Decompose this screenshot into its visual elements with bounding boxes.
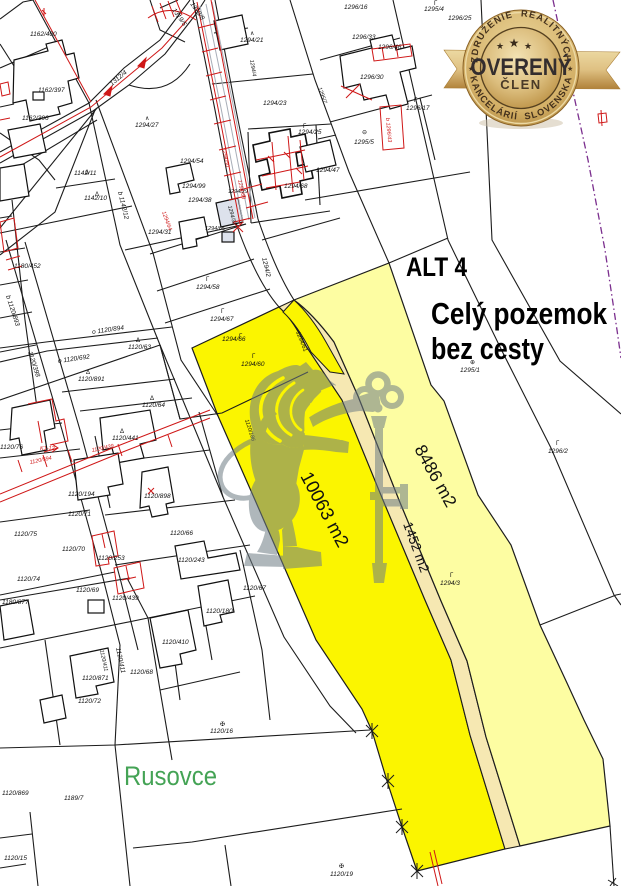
svg-text:1120/71: 1120/71: [68, 511, 91, 518]
svg-text:1294/99: 1294/99: [182, 183, 206, 190]
svg-text:1120/15: 1120/15: [4, 855, 27, 862]
svg-text:1120/871: 1120/871: [82, 675, 109, 682]
svg-text:1294/21: 1294/21: [240, 37, 264, 44]
svg-text:1294/23: 1294/23: [263, 100, 287, 107]
svg-text:K1-12: K1-12: [40, 446, 55, 452]
svg-text:1120/74: 1120/74: [17, 576, 40, 583]
svg-text:1295/1: 1295/1: [460, 367, 480, 374]
svg-text:1294/27: 1294/27: [135, 122, 159, 129]
svg-text:1162/396: 1162/396: [22, 115, 49, 122]
svg-text:1120/898: 1120/898: [144, 493, 171, 500]
svg-text:1120/70: 1120/70: [62, 546, 85, 553]
svg-text:1294/25: 1294/25: [298, 129, 322, 136]
svg-text:1120/64: 1120/64: [142, 402, 165, 409]
svg-text:1120/194: 1120/194: [68, 491, 95, 498]
svg-text:1294/68: 1294/68: [284, 183, 308, 190]
svg-text:1294/60: 1294/60: [241, 361, 265, 368]
svg-text:1120/68: 1120/68: [130, 669, 153, 676]
svg-text:⊖: ⊖: [362, 130, 367, 136]
svg-text:Δ: Δ: [85, 170, 89, 176]
svg-text:1296/16: 1296/16: [344, 4, 368, 11]
svg-text:1189/7: 1189/7: [64, 795, 84, 802]
svg-text:★: ★: [496, 41, 504, 51]
svg-text:1296/46: 1296/46: [378, 44, 402, 51]
svg-text:1120/439: 1120/439: [112, 595, 139, 602]
svg-text:Δ: Δ: [86, 370, 90, 376]
svg-text:1294/67: 1294/67: [210, 316, 234, 323]
svg-text:1180/877: 1180/877: [2, 599, 29, 606]
svg-text:∧: ∧: [250, 31, 254, 37]
svg-text:1120/66: 1120/66: [170, 530, 193, 537]
svg-text:1120/891: 1120/891: [78, 376, 105, 383]
svg-text:1294/54: 1294/54: [180, 158, 204, 165]
svg-text:1294/65: 1294/65: [205, 226, 226, 232]
svg-text:1120/253: 1120/253: [98, 555, 125, 562]
svg-text:1162/397: 1162/397: [38, 87, 65, 94]
svg-text:1180/452: 1180/452: [14, 263, 41, 270]
svg-text:1120/180: 1120/180: [206, 608, 233, 615]
svg-text:1120/410: 1120/410: [162, 639, 189, 646]
svg-text:1296/33: 1296/33: [352, 34, 376, 41]
svg-text:1120/72: 1120/72: [78, 698, 101, 705]
svg-text:1120/69: 1120/69: [76, 587, 99, 594]
svg-text:Δ: Δ: [150, 396, 154, 402]
svg-text:1120/243: 1120/243: [178, 557, 205, 564]
svg-text:1120/19: 1120/19: [330, 871, 353, 878]
svg-text:1294/47: 1294/47: [316, 167, 340, 174]
svg-text:1120/67: 1120/67: [243, 585, 266, 592]
svg-text:Δ: Δ: [95, 192, 99, 198]
svg-text:1120/441: 1120/441: [112, 435, 139, 442]
svg-text:1296/30: 1296/30: [360, 74, 384, 81]
svg-text:✠: ✠: [220, 721, 225, 728]
svg-text:Celý pozemok: Celý pozemok: [431, 296, 608, 331]
svg-text:1120/63: 1120/63: [128, 344, 151, 351]
svg-text:1120/16: 1120/16: [210, 728, 233, 735]
svg-text:1294/58: 1294/58: [196, 284, 220, 291]
svg-text:1162/400: 1162/400: [30, 31, 57, 38]
svg-text:★: ★: [509, 36, 520, 50]
svg-text:★: ★: [524, 41, 532, 51]
svg-text:1296/17: 1296/17: [406, 105, 430, 112]
svg-text:Δ: Δ: [136, 338, 140, 344]
svg-text:Rusovce: Rusovce: [124, 761, 217, 791]
svg-text:1294/38: 1294/38: [188, 197, 212, 204]
svg-text:ČLEN: ČLEN: [500, 77, 541, 92]
svg-text:Δ: Δ: [120, 429, 124, 435]
svg-text:∧: ∧: [145, 116, 149, 122]
svg-text:1296/2: 1296/2: [548, 448, 568, 455]
svg-text:bez cesty: bez cesty: [431, 331, 545, 366]
svg-text:1120/869: 1120/869: [2, 790, 29, 797]
svg-text:1120/75: 1120/75: [14, 531, 37, 538]
svg-text:1296/25: 1296/25: [448, 15, 472, 22]
svg-text:1295/4: 1295/4: [424, 6, 444, 13]
svg-text:1295/5: 1295/5: [354, 139, 374, 146]
svg-text:ALT 4: ALT 4: [406, 252, 467, 282]
svg-text:1294/3: 1294/3: [440, 580, 460, 587]
svg-text:✠: ✠: [339, 863, 344, 870]
svg-text:1120/76: 1120/76: [0, 444, 23, 451]
